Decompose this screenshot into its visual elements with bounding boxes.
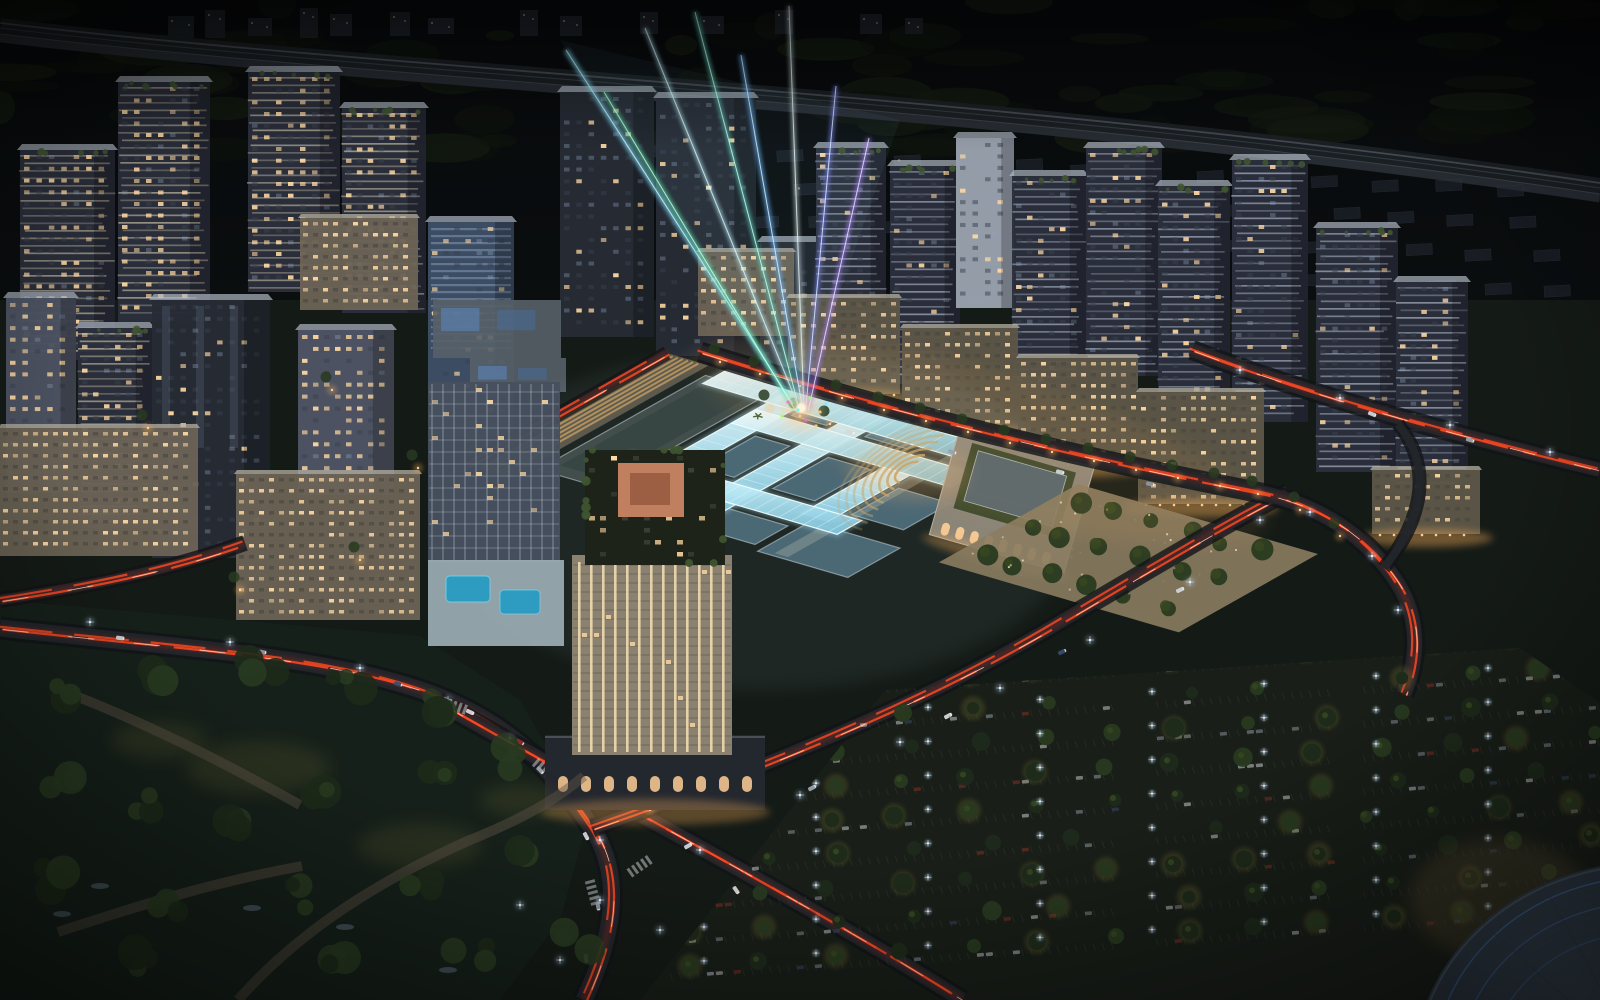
vignette-overlay: [0, 0, 1600, 1000]
aerial-city-render: [0, 0, 1600, 1000]
render-canvas: [0, 0, 1600, 1000]
